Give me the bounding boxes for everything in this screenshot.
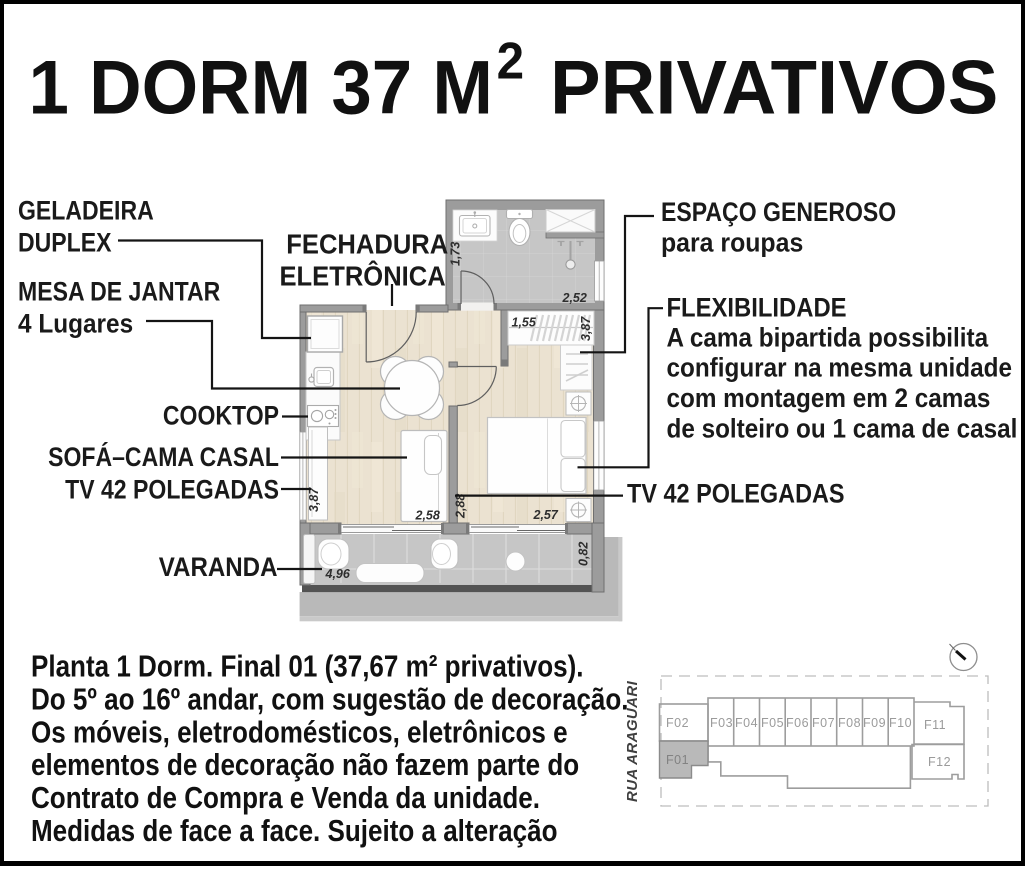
svg-text:F09: F09 xyxy=(863,716,886,730)
svg-text:RUA ARAGUARI: RUA ARAGUARI xyxy=(624,680,641,802)
svg-text:2,57: 2,57 xyxy=(533,508,559,522)
svg-text:Do 5º ao 16º andar, com sugest: Do 5º ao 16º andar, com sugestão de deco… xyxy=(31,682,629,717)
svg-text:para roupas: para roupas xyxy=(661,229,803,258)
svg-text:Planta 1 Dorm. Final 01 (37,67: Planta 1 Dorm. Final 01 (37,67 m² privat… xyxy=(31,649,583,684)
svg-text:F01: F01 xyxy=(666,753,689,767)
svg-text:Contrato de Compra e Venda da: Contrato de Compra e Venda da unidade. xyxy=(31,781,540,816)
svg-text:ESPAÇO GENEROSO: ESPAÇO GENEROSO xyxy=(661,199,896,228)
svg-text:FECHADURA: FECHADURA xyxy=(286,229,448,260)
svg-text:F07: F07 xyxy=(812,716,835,730)
svg-text:1 DORM 37 M2: 1 DORM 37 M2 xyxy=(29,31,525,130)
svg-text:TV 42 POLEGADAS: TV 42 POLEGADAS xyxy=(627,479,845,509)
svg-text:MESA DE JANTAR: MESA DE JANTAR xyxy=(18,278,220,307)
svg-text:ELETRÔNICA: ELETRÔNICA xyxy=(280,261,446,292)
svg-text:Medidas de face a face. Sujeit: Medidas de face a face. Sujeito a altera… xyxy=(31,814,557,849)
svg-text:F10: F10 xyxy=(889,716,912,730)
svg-text:A cama bipartida possibilita: A cama bipartida possibilita xyxy=(667,324,989,353)
svg-text:DUPLEX: DUPLEX xyxy=(18,229,112,258)
svg-text:PRIVATIVOS: PRIVATIVOS xyxy=(550,45,998,130)
svg-text:2,52: 2,52 xyxy=(562,291,587,305)
svg-text:configurar na mesma unidade: configurar na mesma unidade xyxy=(667,354,1012,383)
svg-text:2,58: 2,58 xyxy=(415,509,440,523)
svg-text:VARANDA: VARANDA xyxy=(159,553,278,582)
svg-text:F02: F02 xyxy=(666,716,689,730)
svg-text:FLEXIBILIDADE: FLEXIBILIDADE xyxy=(667,293,847,322)
svg-text:elementos de decoração não faz: elementos de decoração não fazem parte d… xyxy=(31,748,579,783)
svg-text:2,88: 2,88 xyxy=(454,494,468,519)
svg-text:SOFÁ–CAMA CASAL: SOFÁ–CAMA CASAL xyxy=(48,443,279,473)
svg-text:F04: F04 xyxy=(735,716,758,730)
svg-text:TV 42 POLEGADAS: TV 42 POLEGADAS xyxy=(65,476,279,505)
svg-text:F06: F06 xyxy=(786,716,809,730)
svg-text:1,55: 1,55 xyxy=(512,316,537,330)
svg-text:4 Lugares: 4 Lugares xyxy=(18,310,133,339)
svg-text:F08: F08 xyxy=(838,716,861,730)
svg-text:3,87: 3,87 xyxy=(307,487,321,512)
svg-text:COOKTOP: COOKTOP xyxy=(163,402,279,431)
svg-text:3,87: 3,87 xyxy=(579,316,593,341)
svg-text:1,73: 1,73 xyxy=(449,242,463,266)
svg-text:Os móveis, eletrodomésticos, e: Os móveis, eletrodomésticos, eletrônicos… xyxy=(31,715,568,750)
svg-text:com montagem em 2 camas: com montagem em 2 camas xyxy=(667,384,991,413)
svg-text:F12: F12 xyxy=(928,755,951,769)
svg-text:GELADEIRA: GELADEIRA xyxy=(18,197,154,226)
svg-text:F11: F11 xyxy=(924,718,946,732)
svg-text:4,96: 4,96 xyxy=(325,567,351,581)
svg-text:de solteiro ou 1 cama de casal: de solteiro ou 1 cama de casal xyxy=(667,414,1018,443)
svg-text:0,82: 0,82 xyxy=(577,542,591,566)
svg-text:F05: F05 xyxy=(761,716,784,730)
svg-text:F03: F03 xyxy=(710,716,733,730)
